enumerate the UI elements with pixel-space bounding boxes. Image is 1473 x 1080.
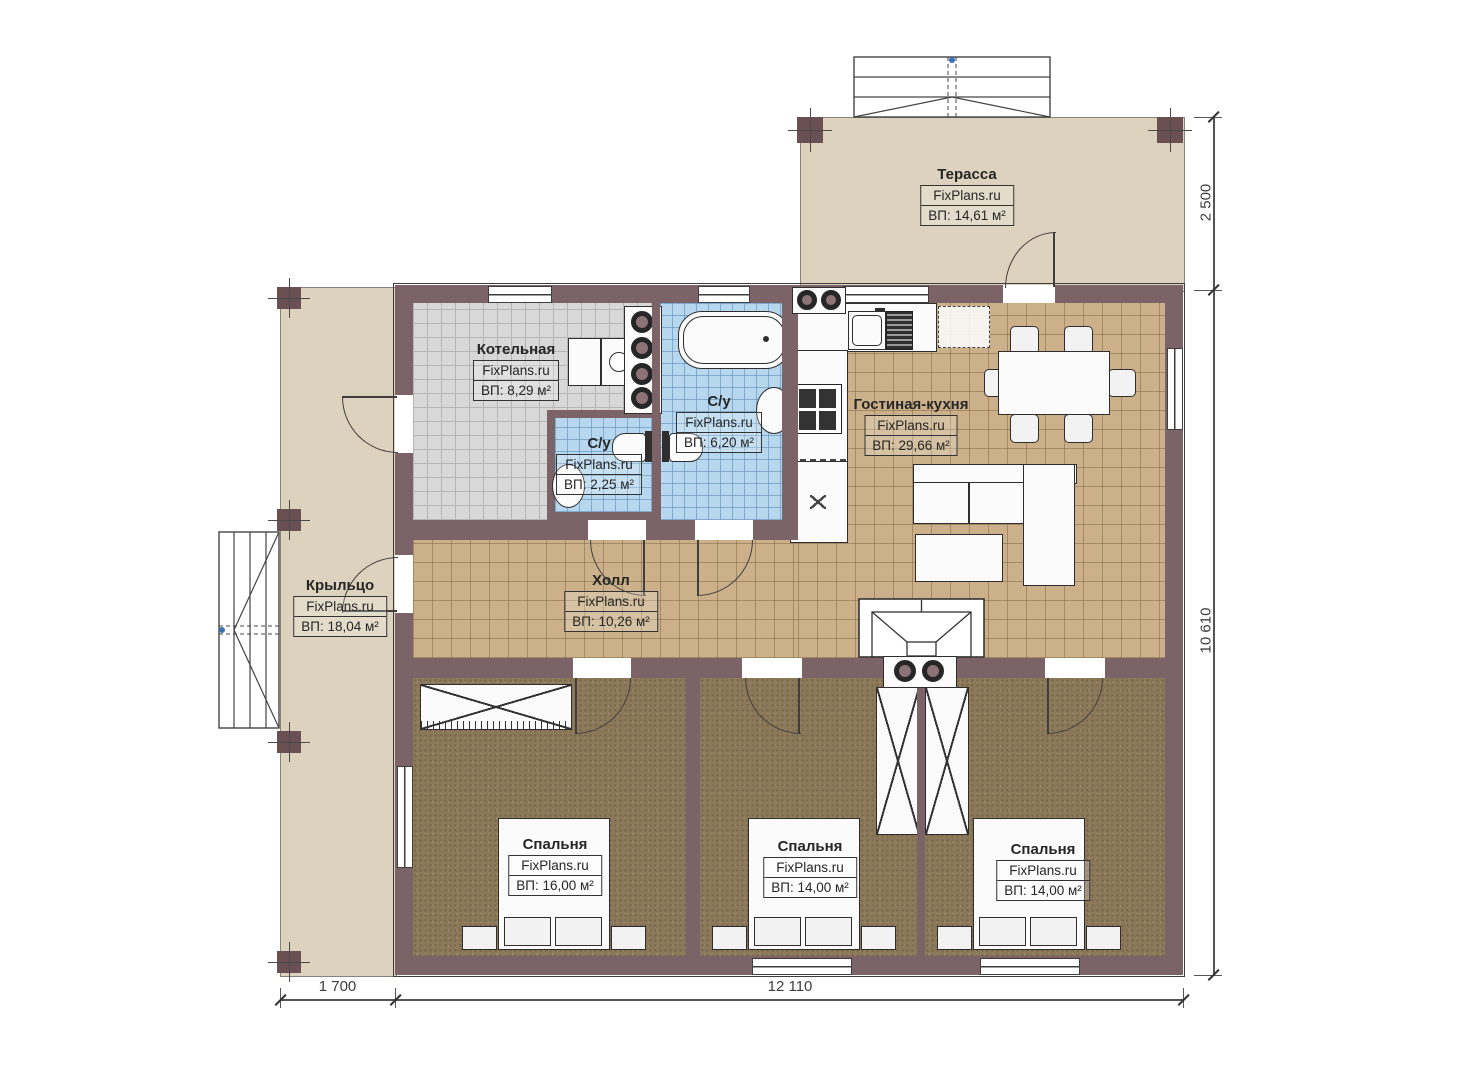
wall — [652, 303, 660, 520]
porch-steps — [218, 531, 280, 729]
pillow — [979, 917, 1026, 946]
coffee-table — [915, 534, 1003, 582]
room-area: ВП: 18,04 м² — [294, 616, 386, 636]
room-title: Гостиная-кухня — [854, 396, 969, 413]
room-area: ВП: 16,00 м² — [509, 875, 601, 895]
window — [488, 286, 552, 303]
pillow — [1030, 917, 1077, 946]
manifold-valve-icon — [631, 337, 653, 359]
nightstand — [462, 926, 497, 950]
wardrobe — [420, 684, 572, 730]
dining-chair — [1064, 414, 1093, 443]
brand-text: FixPlans.ru — [509, 856, 601, 875]
room-title: Крыльцо — [306, 577, 374, 594]
room-label-bathroom-large: С/у FixPlans.ru ВП: 6,20 м² — [676, 393, 762, 453]
brand-text: FixPlans.ru — [921, 186, 1013, 205]
sofa-chaise — [1023, 464, 1075, 586]
dim-label-porch-width: 1 700 — [295, 978, 380, 995]
vent-mark-icon — [810, 495, 826, 509]
dim-label-terrace-depth: 2 500 — [1198, 163, 1215, 243]
wall — [395, 285, 413, 975]
fireplace — [858, 598, 985, 658]
nightstand — [611, 926, 646, 950]
sofa-seat — [913, 482, 1025, 524]
door-opening — [742, 658, 802, 678]
dimension-line-bottom — [280, 999, 1183, 1001]
window — [397, 766, 413, 868]
brand-text: FixPlans.ru — [677, 413, 761, 432]
flue-pipe-icon — [922, 660, 944, 682]
room-area: ВП: 14,00 м² — [764, 877, 856, 897]
dining-table — [998, 351, 1110, 415]
floor-plan: Терасса FixPlans.ru ВП: 14,61 м² Котельн… — [0, 0, 1473, 1080]
nightstand — [712, 926, 747, 950]
nightstand — [937, 926, 972, 950]
brand-text: FixPlans.ru — [565, 592, 657, 611]
room-label-terrace: Терасса FixPlans.ru ВП: 14,61 м² — [920, 166, 1014, 226]
door-opening — [1045, 658, 1105, 678]
brand-text: FixPlans.ru — [764, 858, 856, 877]
room-label-bedroom-1: Спальня FixPlans.ru ВП: 16,00 м² — [508, 836, 602, 896]
brand-text: FixPlans.ru — [997, 861, 1089, 880]
window — [752, 958, 852, 975]
room-title: Спальня — [1011, 841, 1076, 858]
dining-chair — [1108, 369, 1136, 397]
door-opening — [695, 520, 753, 540]
pillow — [504, 917, 551, 946]
room-area: ВП: 8,29 м² — [474, 380, 558, 400]
door-leaf — [1047, 678, 1049, 733]
column-post — [277, 951, 301, 973]
brand-text: FixPlans.ru — [557, 455, 641, 474]
door-leaf — [1053, 232, 1055, 287]
room-title: Спальня — [778, 838, 843, 855]
room-area: ВП: 2,25 м² — [557, 474, 641, 494]
pillow — [805, 917, 852, 946]
dimension-extension — [1194, 117, 1222, 118]
room-area: ВП: 14,61 м² — [921, 205, 1013, 225]
room-title: Спальня — [523, 836, 588, 853]
dim-label-house-depth: 10 610 — [1198, 591, 1215, 671]
room-label-hall: Холл FixPlans.ru ВП: 10,26 м² — [564, 572, 658, 632]
column-post — [797, 117, 823, 143]
column-post — [277, 509, 301, 531]
stove — [794, 384, 842, 434]
room-label-living-kitchen: Гостиная-кухня FixPlans.ru ВП: 29,66 м² — [854, 396, 969, 456]
dim-label-house-width: 12 110 — [745, 978, 835, 995]
room-area: ВП: 14,00 м² — [997, 880, 1089, 900]
pillow — [555, 917, 602, 946]
door-leaf — [798, 678, 800, 733]
door-opening — [573, 658, 631, 678]
wardrobe — [876, 687, 920, 835]
window — [980, 958, 1080, 975]
nightstand — [1086, 926, 1121, 950]
wall — [686, 678, 700, 956]
window — [843, 286, 929, 303]
oven — [886, 311, 913, 350]
room-title: С/у — [707, 393, 730, 410]
kitchen-sink — [848, 311, 886, 350]
burner-icon — [821, 290, 841, 310]
manifold-valve-icon — [631, 363, 653, 385]
column-post — [277, 731, 301, 753]
brand-text: FixPlans.ru — [865, 416, 957, 435]
room-title: Терасса — [937, 166, 996, 183]
dimension-extension — [1194, 975, 1222, 976]
pillow — [754, 917, 801, 946]
burner-icon — [797, 290, 817, 310]
column-post — [277, 287, 301, 309]
bathtub — [678, 311, 790, 369]
room-label-bathroom-small: С/у FixPlans.ru ВП: 2,25 м² — [556, 435, 642, 495]
door-leaf — [697, 540, 699, 595]
room-title: Холл — [592, 572, 630, 589]
room-label-porch: Крыльцо FixPlans.ru ВП: 18,04 м² — [293, 577, 387, 637]
door-leaf — [575, 678, 577, 733]
toilet-tank — [645, 431, 652, 462]
window — [1167, 348, 1183, 430]
brand-text: FixPlans.ru — [294, 597, 386, 616]
room-title: Котельная — [477, 341, 556, 358]
terrace-steps — [853, 56, 1051, 118]
manifold-valve-icon — [631, 311, 653, 333]
door-opening — [588, 520, 646, 540]
dimension-extension — [1194, 290, 1222, 291]
wardrobe — [925, 687, 969, 835]
flue-pipe-icon — [894, 660, 916, 682]
wall — [782, 303, 798, 540]
room-area: ВП: 10,26 м² — [565, 611, 657, 631]
window — [698, 286, 750, 303]
room-title: С/у — [587, 435, 610, 452]
toilet-tank — [662, 431, 669, 462]
room-area: ВП: 6,20 м² — [677, 432, 761, 452]
dimension-line-right — [1213, 117, 1215, 975]
room-label-bedroom-2: Спальня FixPlans.ru ВП: 14,00 м² — [763, 838, 857, 898]
nightstand — [861, 926, 896, 950]
wall — [917, 678, 925, 956]
room-area: ВП: 29,66 м² — [865, 435, 957, 455]
manifold-valve-icon — [631, 387, 653, 409]
door-leaf — [342, 396, 397, 398]
room-label-bedroom-3: Спальня FixPlans.ru ВП: 14,00 м² — [996, 841, 1090, 901]
fridge-outline — [938, 306, 990, 348]
room-label-boiler: Котельная FixPlans.ru ВП: 8,29 м² — [473, 341, 559, 401]
column-post — [1157, 117, 1183, 143]
dining-chair — [1010, 414, 1039, 443]
brand-text: FixPlans.ru — [474, 361, 558, 380]
